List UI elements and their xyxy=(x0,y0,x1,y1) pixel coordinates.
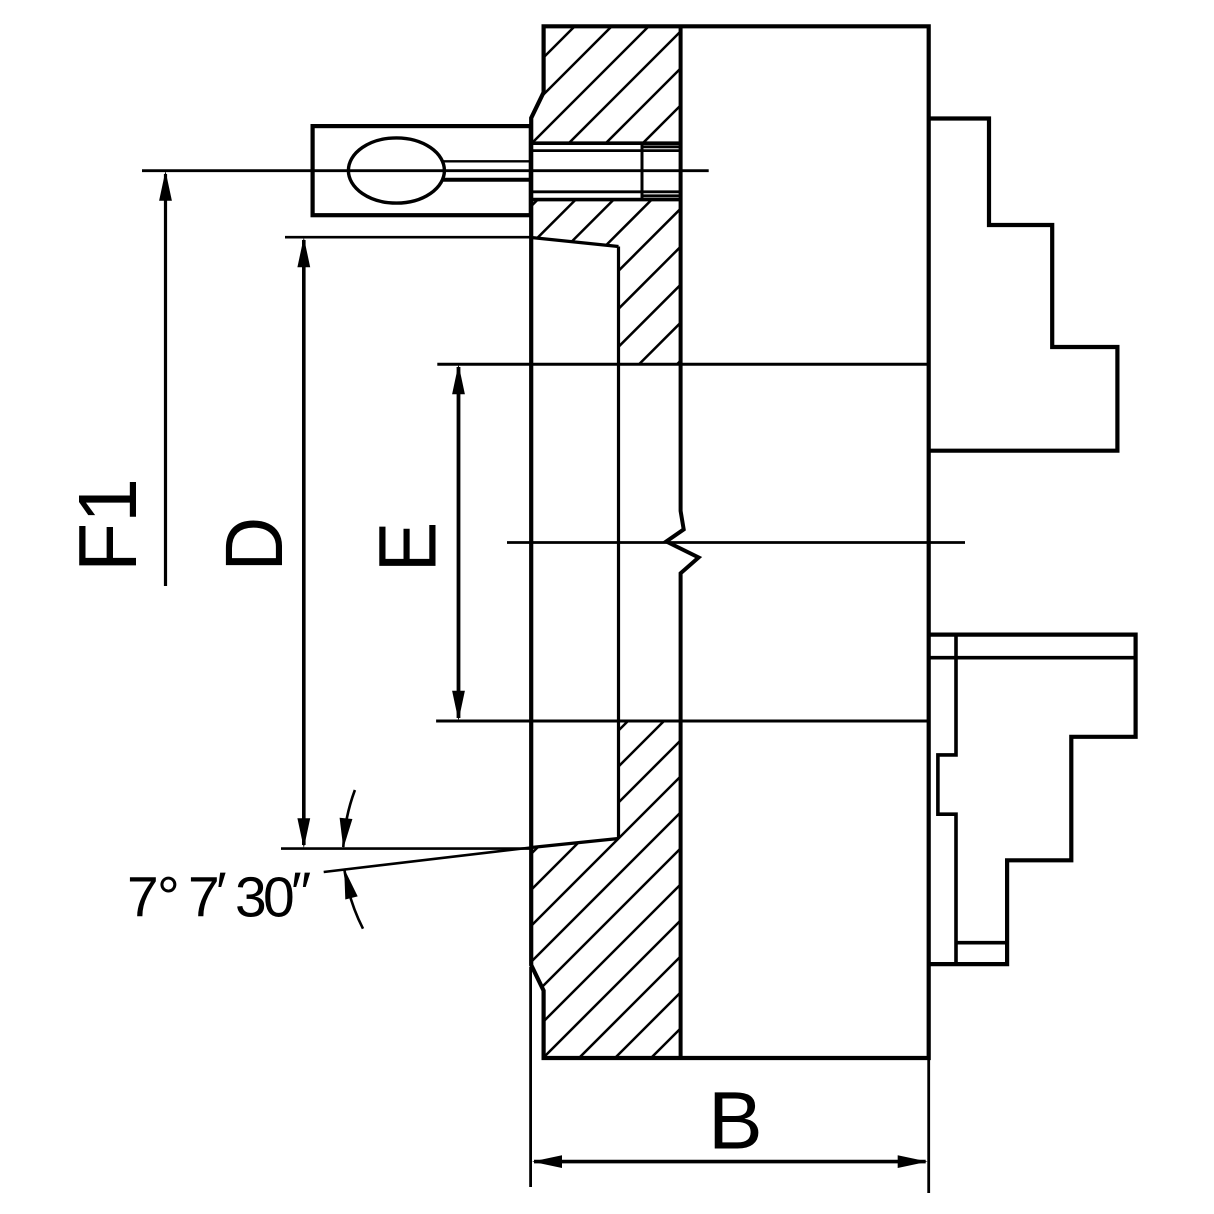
svg-text:7: 7 xyxy=(188,866,220,930)
svg-text:″: ″ xyxy=(291,861,311,925)
svg-text:F1: F1 xyxy=(62,478,154,572)
svg-text:7: 7 xyxy=(127,866,159,930)
svg-text:°: ° xyxy=(157,866,180,930)
svg-text:D: D xyxy=(208,517,300,571)
svg-text:3: 3 xyxy=(235,866,267,930)
svg-text:′: ′ xyxy=(216,861,227,925)
svg-text:E: E xyxy=(362,522,454,572)
svg-text:0: 0 xyxy=(263,866,295,930)
svg-text:B: B xyxy=(708,1075,763,1166)
